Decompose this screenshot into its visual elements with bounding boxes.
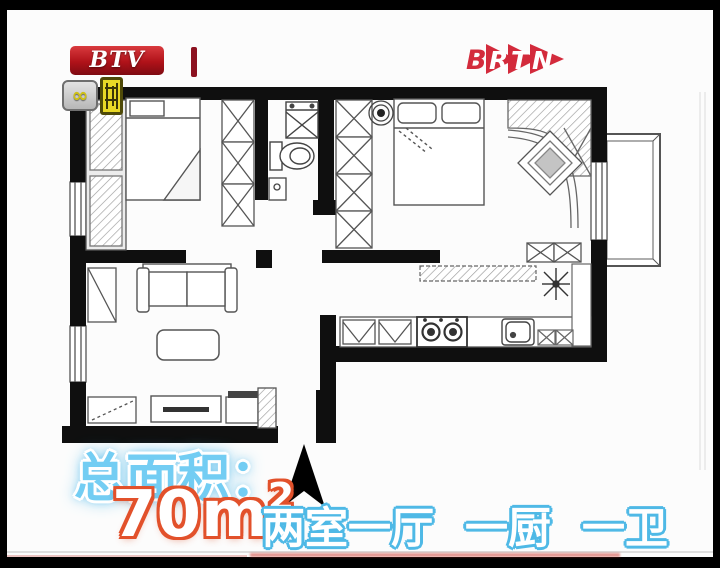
livingroom-tv-cabinet — [151, 396, 221, 422]
btv-logo-text: BTV — [89, 47, 144, 73]
brtn-letter-b: B — [466, 45, 487, 76]
area-number: 70m — [112, 478, 268, 552]
yellow-badge-glyph-icon — [103, 80, 120, 112]
bedroom1-closet — [222, 100, 254, 226]
infinity-icon: ∞ — [72, 83, 89, 107]
video-red-artifact-left — [7, 555, 247, 557]
bathroom-washing-machine — [286, 102, 318, 138]
hall-cabinet — [527, 243, 581, 262]
bathroom-toilet — [270, 142, 314, 170]
bedroom2-bed — [394, 99, 484, 205]
brtn-letter-n: N — [532, 46, 553, 75]
btv-logo: BTV — [70, 46, 164, 75]
gray-badge: ∞ — [62, 80, 98, 111]
layout-text: 两室一厅 一厨 一卫 — [262, 494, 668, 556]
bathroom-sink — [269, 178, 286, 200]
brtn-logo: B R T N — [464, 41, 574, 78]
kitchen-sink — [502, 319, 534, 345]
brtn-letter-r: R — [489, 46, 508, 75]
kitchen-top-counter — [420, 266, 536, 281]
frame-artifact-line — [700, 92, 705, 470]
livingroom-low-cabinet — [88, 397, 136, 423]
kitchen-stove — [417, 317, 467, 347]
livingroom-side-cabinet — [226, 388, 276, 428]
balcony — [600, 134, 660, 266]
video-red-artifact — [250, 553, 620, 557]
tv-frame: { "broadcast": { "btv_label": "BTV", "br… — [0, 0, 720, 568]
bedroom1-wardrobe — [86, 100, 126, 250]
livingroom-coffee-table — [157, 330, 219, 360]
red-tick-mark — [191, 47, 197, 77]
kitchen-plant-icon — [542, 268, 570, 300]
brtn-letter-t: T — [511, 46, 530, 75]
livingroom-corner-unit — [88, 268, 116, 322]
bedroom2-ceiling-light-icon — [369, 101, 393, 125]
yellow-badge — [100, 77, 123, 115]
livingroom-sofa — [137, 264, 237, 312]
bedroom1-bed — [126, 98, 200, 200]
bedroom2-wardrobe — [336, 100, 372, 248]
